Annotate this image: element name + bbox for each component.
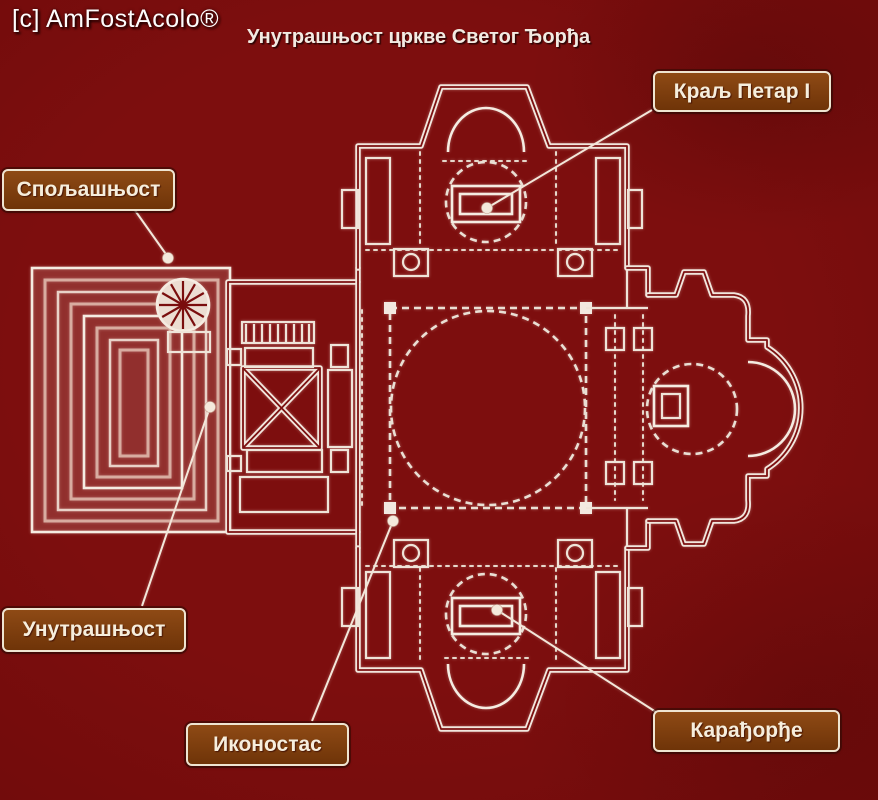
east-apse-arc bbox=[748, 362, 795, 456]
south-apse-arc bbox=[448, 664, 524, 708]
north-arm bbox=[342, 87, 642, 276]
church-plan-image: [c] AmFostAcolo® Унутрашњост цркве Свето… bbox=[0, 0, 878, 800]
central-dome-circle bbox=[391, 311, 585, 505]
watermark: [c] AmFostAcolo® bbox=[12, 5, 219, 34]
callout-karadjordje: Карађорђе bbox=[653, 710, 840, 752]
callout-unutrasnjost: Унутрашњост bbox=[2, 608, 186, 652]
page-title: Унутрашњост цркве Светог Ђорђа bbox=[247, 26, 590, 49]
narthex bbox=[227, 268, 358, 548]
south-arm bbox=[342, 540, 642, 729]
leader-ikonostas bbox=[312, 521, 393, 721]
altar-table bbox=[654, 386, 688, 426]
callout-kralj-petar: Краљ Петар I bbox=[653, 71, 831, 112]
north-apse-arc bbox=[448, 108, 524, 152]
floor-plan bbox=[0, 0, 878, 800]
altar-area bbox=[606, 268, 801, 548]
leader-spoljasnjost bbox=[134, 209, 168, 257]
central-dome bbox=[362, 268, 648, 548]
callout-spoljasnjost: Спољашњост bbox=[2, 169, 175, 211]
tomb-karadjordje bbox=[452, 598, 520, 634]
callout-ikonostas: Иконостас bbox=[186, 723, 349, 766]
